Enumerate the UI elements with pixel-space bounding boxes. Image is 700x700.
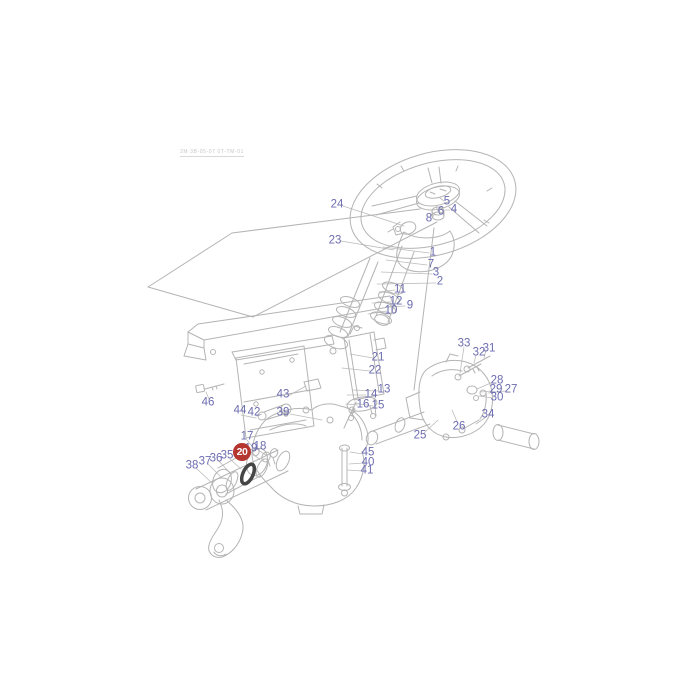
part-label-15: 15 <box>372 400 385 412</box>
part-label-11: 11 <box>394 284 406 296</box>
part-label-36: 36 <box>210 453 223 465</box>
part-label-27: 27 <box>505 384 518 396</box>
part-label-33: 33 <box>458 338 471 350</box>
highlighted-part-badge: 20 <box>233 443 251 461</box>
part-label-34: 34 <box>482 409 495 421</box>
part-label-26: 26 <box>453 421 466 433</box>
part-label-41: 41 <box>361 465 374 477</box>
part-label-13: 13 <box>378 384 391 396</box>
part-label-1: 1 <box>430 247 436 259</box>
part-label-42: 42 <box>248 407 261 419</box>
part-label-46: 46 <box>202 397 215 409</box>
part-label-44: 44 <box>234 405 247 417</box>
part-label-32: 32 <box>473 347 486 359</box>
part-label-38: 38 <box>186 460 199 472</box>
part-label-17: 17 <box>241 431 254 443</box>
part-label-39: 39 <box>277 407 290 419</box>
part-label-45: 45 <box>362 447 375 459</box>
labels-layer: 1234567891011121314151617181921222324252… <box>0 0 700 700</box>
part-label-37: 37 <box>199 456 212 468</box>
part-label-30: 30 <box>491 392 504 404</box>
part-label-25: 25 <box>414 430 427 442</box>
part-label-21: 21 <box>372 352 385 364</box>
parts-diagram-page: 2M 3B-05-07 0T-TM-01 <box>0 0 700 700</box>
part-label-8: 8 <box>426 213 432 225</box>
part-label-12: 12 <box>390 296 403 308</box>
part-label-22: 22 <box>369 365 382 377</box>
part-label-43: 43 <box>277 389 290 401</box>
part-label-6: 6 <box>438 206 444 218</box>
part-label-23: 23 <box>329 235 342 247</box>
part-label-24: 24 <box>331 199 344 211</box>
part-label-4: 4 <box>451 204 457 216</box>
part-label-9: 9 <box>407 300 413 312</box>
part-label-35: 35 <box>221 450 234 462</box>
part-label-7: 7 <box>428 259 434 271</box>
part-label-5: 5 <box>444 196 450 208</box>
part-label-16: 16 <box>357 399 370 411</box>
